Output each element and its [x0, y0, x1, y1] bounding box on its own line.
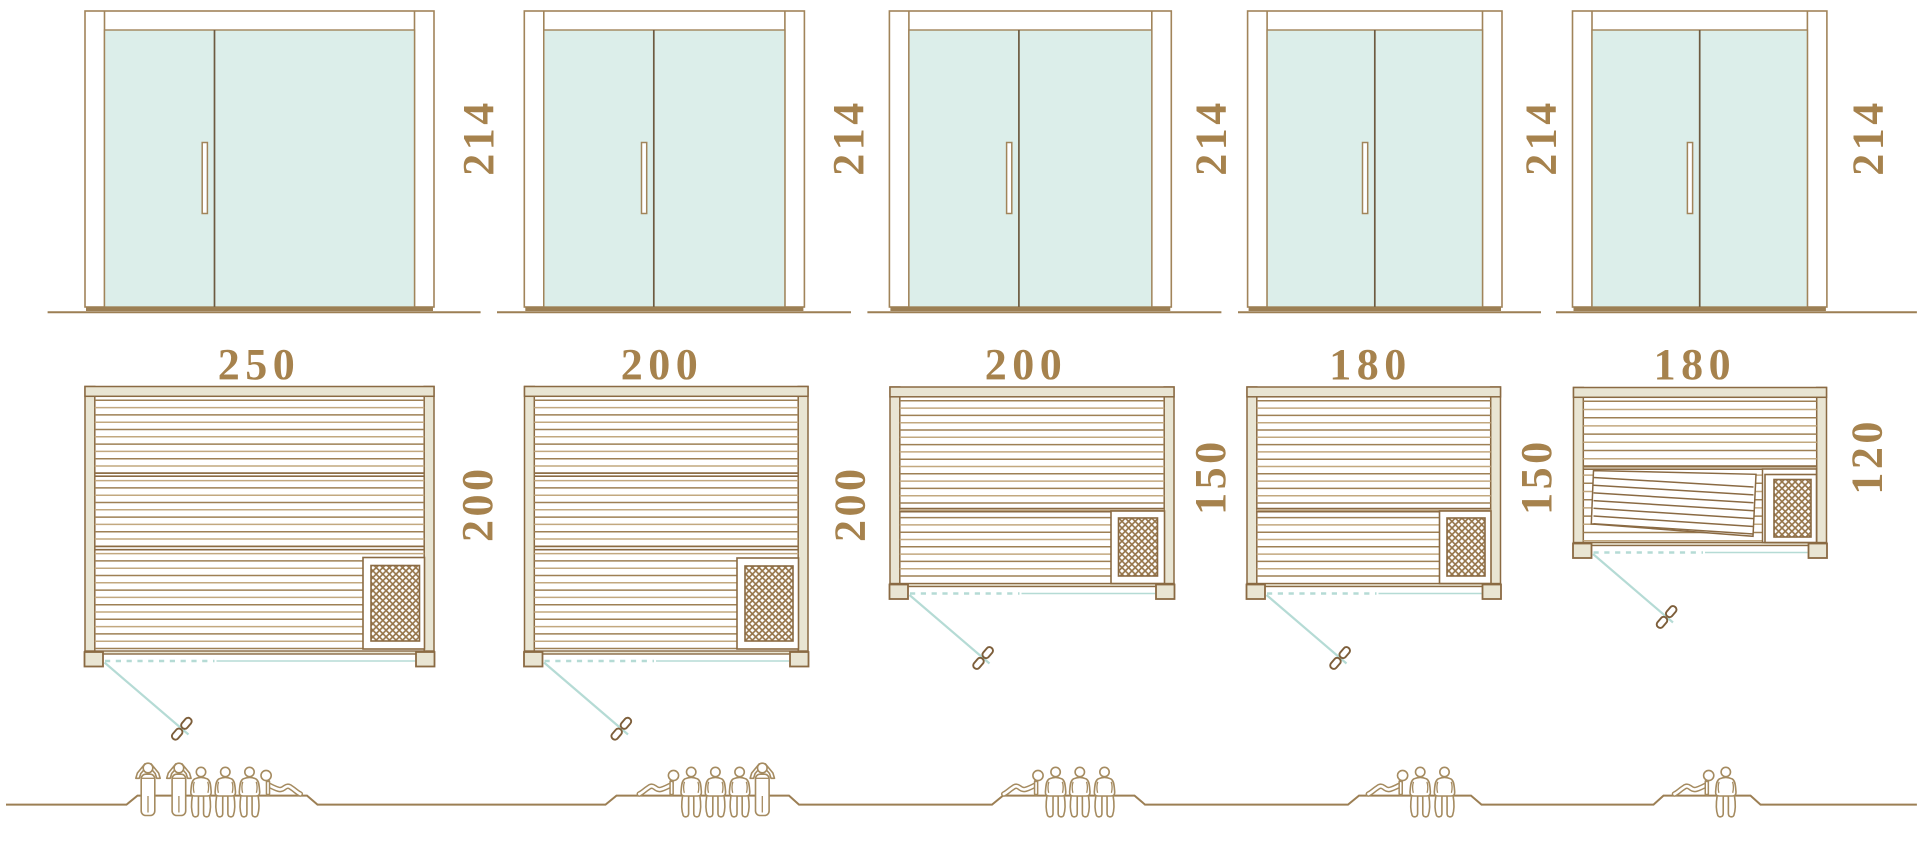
svg-text:200: 200 [453, 466, 502, 543]
svg-text:120: 120 [1842, 418, 1891, 495]
svg-text:250: 250 [218, 340, 301, 389]
svg-text:200: 200 [621, 340, 704, 389]
svg-text:150: 150 [1186, 438, 1235, 514]
svg-text:214: 214 [1844, 99, 1893, 176]
svg-text:150: 150 [1512, 438, 1561, 514]
svg-text:180: 180 [1329, 340, 1412, 389]
svg-text:214: 214 [454, 99, 503, 176]
svg-text:180: 180 [1654, 340, 1737, 389]
svg-text:214: 214 [824, 99, 873, 176]
svg-text:200: 200 [985, 340, 1068, 389]
svg-text:214: 214 [1517, 99, 1566, 176]
svg-text:214: 214 [1187, 99, 1236, 176]
svg-text:200: 200 [826, 466, 875, 543]
